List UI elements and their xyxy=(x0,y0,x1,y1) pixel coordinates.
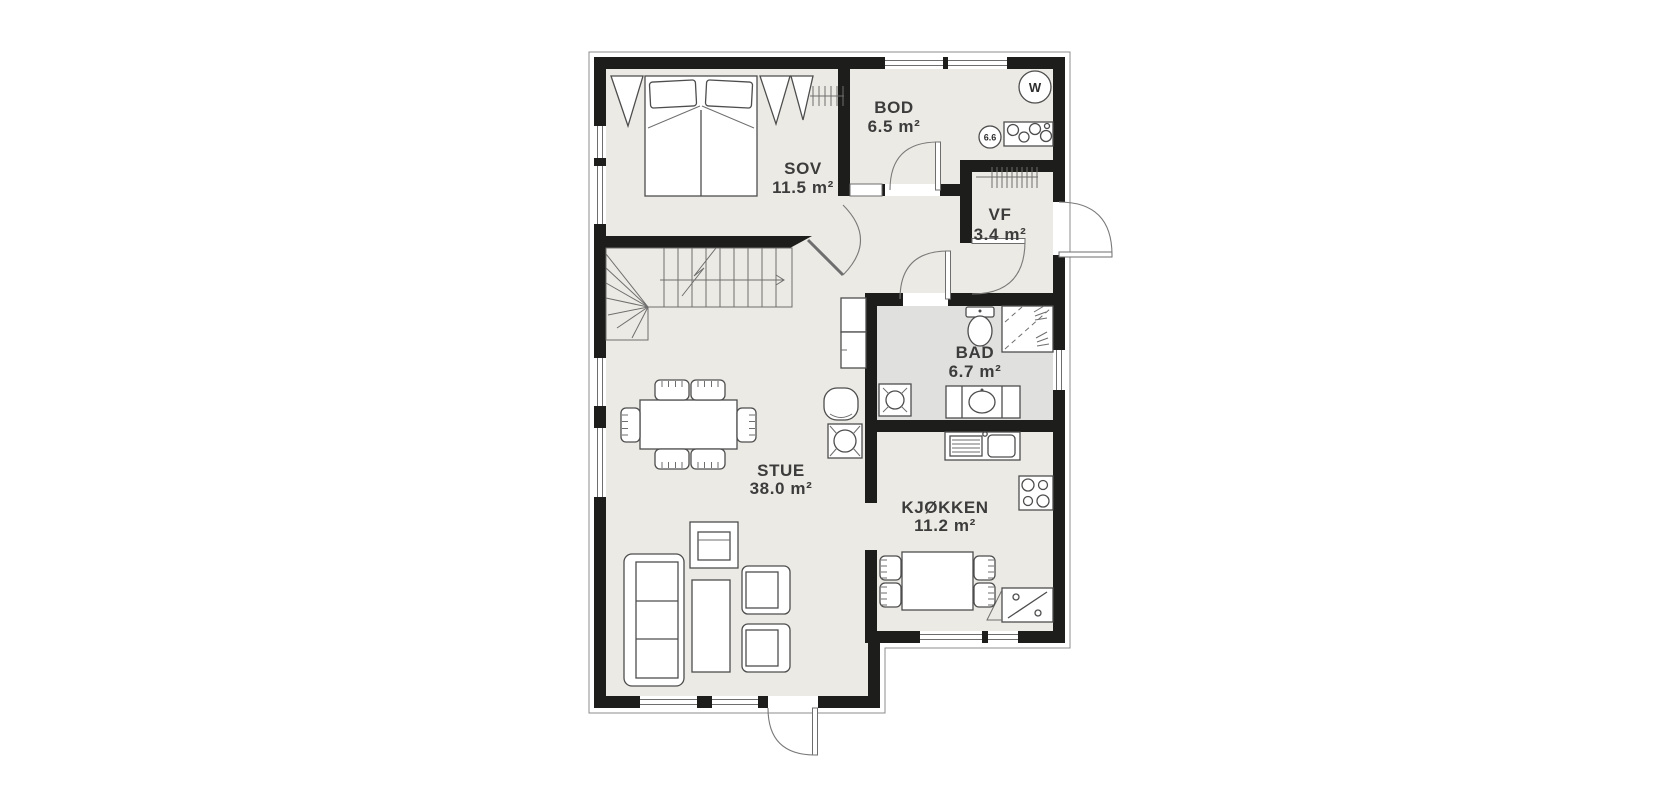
kitchen-table xyxy=(902,552,973,610)
smoke-detector-icon: 6.6 xyxy=(979,126,1001,148)
vanity-sink xyxy=(946,386,1020,418)
wall-sov-bottom xyxy=(594,236,790,248)
room-label-kjokken: KJØKKEN xyxy=(901,498,988,517)
hall-cabinet xyxy=(841,298,866,332)
laundry-counter xyxy=(1004,122,1053,146)
armchair xyxy=(742,566,790,614)
water-heater-icon: W xyxy=(1019,71,1051,103)
wall-bad-kitchen xyxy=(865,420,1053,432)
cooktop-icon xyxy=(1019,476,1053,510)
dining-chair xyxy=(737,408,756,442)
window-bod-2 xyxy=(948,57,1007,69)
kitchen-chair xyxy=(880,583,901,607)
room-area-sov: 11.5 m² xyxy=(772,178,834,197)
room-area-bad: 6.7 m² xyxy=(949,362,1002,381)
armchair xyxy=(742,624,790,672)
window-stue-1 xyxy=(594,358,606,406)
window-kitchen-2 xyxy=(988,631,1018,643)
dining-table xyxy=(640,400,737,449)
hall-cabinets xyxy=(841,298,866,368)
dining-chair xyxy=(655,380,689,400)
dining-chair xyxy=(691,449,725,469)
kitchen-chair xyxy=(880,556,901,580)
wall-bad-left xyxy=(865,293,877,432)
wall-vf-left xyxy=(960,172,972,243)
pillow xyxy=(649,80,696,108)
window-stue-2 xyxy=(594,428,606,497)
wall-kitchen-left-upper xyxy=(865,432,877,503)
room-label-bod: BOD xyxy=(874,98,914,117)
floorplan-drawing: W 6.6 SOV 11.5 m² BOD 6.5 m² VF 3.4 m² B… xyxy=(0,0,1670,800)
entrance-door xyxy=(1053,202,1112,257)
window-kitchen-1 xyxy=(920,631,982,643)
window-living-2 xyxy=(712,696,758,708)
double-bed xyxy=(645,76,757,196)
smoke-detector-label: 6.6 xyxy=(984,133,997,143)
room-label-stue: STUE xyxy=(757,461,805,480)
wall-bod-bottom-right xyxy=(940,184,960,196)
pillow xyxy=(705,80,752,108)
floor-drain-icon xyxy=(879,384,911,416)
dining-chair xyxy=(621,408,640,442)
tv-bench xyxy=(690,522,738,568)
round-chair xyxy=(824,388,858,420)
room-area-bod: 6.5 m² xyxy=(868,117,921,136)
kitchen-chair xyxy=(974,583,995,607)
window-bad xyxy=(1053,350,1065,390)
window-living-1 xyxy=(640,696,697,708)
wall-kitchen-left-lower xyxy=(865,550,877,643)
room-label-sov: SOV xyxy=(784,159,822,178)
window-bod-1 xyxy=(885,57,943,69)
bod-door-threshold xyxy=(850,184,882,196)
water-heater-label: W xyxy=(1029,80,1042,95)
wall-bad-top-right xyxy=(948,293,1053,306)
sofa xyxy=(624,554,684,686)
floorplan-page: W 6.6 SOV 11.5 m² BOD 6.5 m² VF 3.4 m² B… xyxy=(0,0,1670,800)
dining-chair xyxy=(655,449,689,469)
toilet-icon xyxy=(966,307,994,346)
fireplace-icon xyxy=(828,424,862,458)
room-label-vf: VF xyxy=(989,205,1012,224)
shower-icon xyxy=(1002,306,1053,352)
wall-sov-bod xyxy=(838,57,850,196)
room-area-vf: 3.4 m² xyxy=(974,225,1027,244)
room-area-kjokken: 11.2 m² xyxy=(914,516,976,535)
window-sov-2 xyxy=(594,166,606,224)
coffee-table xyxy=(692,580,730,672)
terrace-door xyxy=(768,696,818,755)
room-label-bad: BAD xyxy=(956,343,995,362)
window-sov-1 xyxy=(594,126,606,158)
kitchen-sink xyxy=(945,432,1020,460)
room-area-stue: 38.0 m² xyxy=(750,479,813,498)
dining-chair xyxy=(691,380,725,400)
kitchen-chair xyxy=(974,556,995,580)
